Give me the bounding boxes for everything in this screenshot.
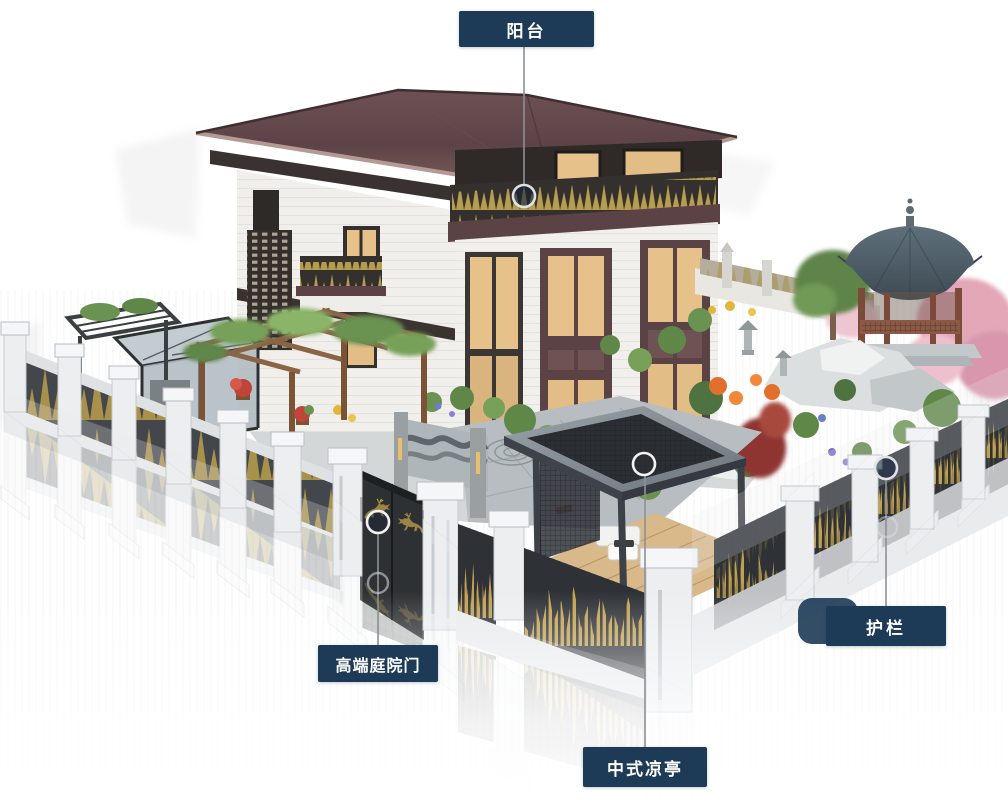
callout-courtyard-gate: 高端庭院门 (318, 645, 438, 682)
villa-scene-illustration (0, 0, 1008, 800)
callout-guardrail-label: 护栏 (866, 614, 906, 639)
callout-balcony: 阳台 (459, 11, 594, 47)
balcony-marker (513, 185, 535, 207)
annotated-villa-image: 阳台 高端庭院门 中式凉亭 护栏 (0, 0, 1008, 800)
guardrail-marker (875, 457, 897, 479)
pavilion-marker (633, 453, 655, 475)
callout-guardrail: 护栏 (826, 606, 946, 646)
gate-marker (367, 511, 389, 533)
callout-balcony-label: 阳台 (507, 17, 547, 42)
callout-pavilion: 中式凉亭 (583, 747, 707, 787)
callout-courtyard-gate-label: 高端庭院门 (335, 652, 420, 676)
left-balcony (296, 256, 386, 312)
callout-pavilion-label: 中式凉亭 (607, 755, 683, 780)
